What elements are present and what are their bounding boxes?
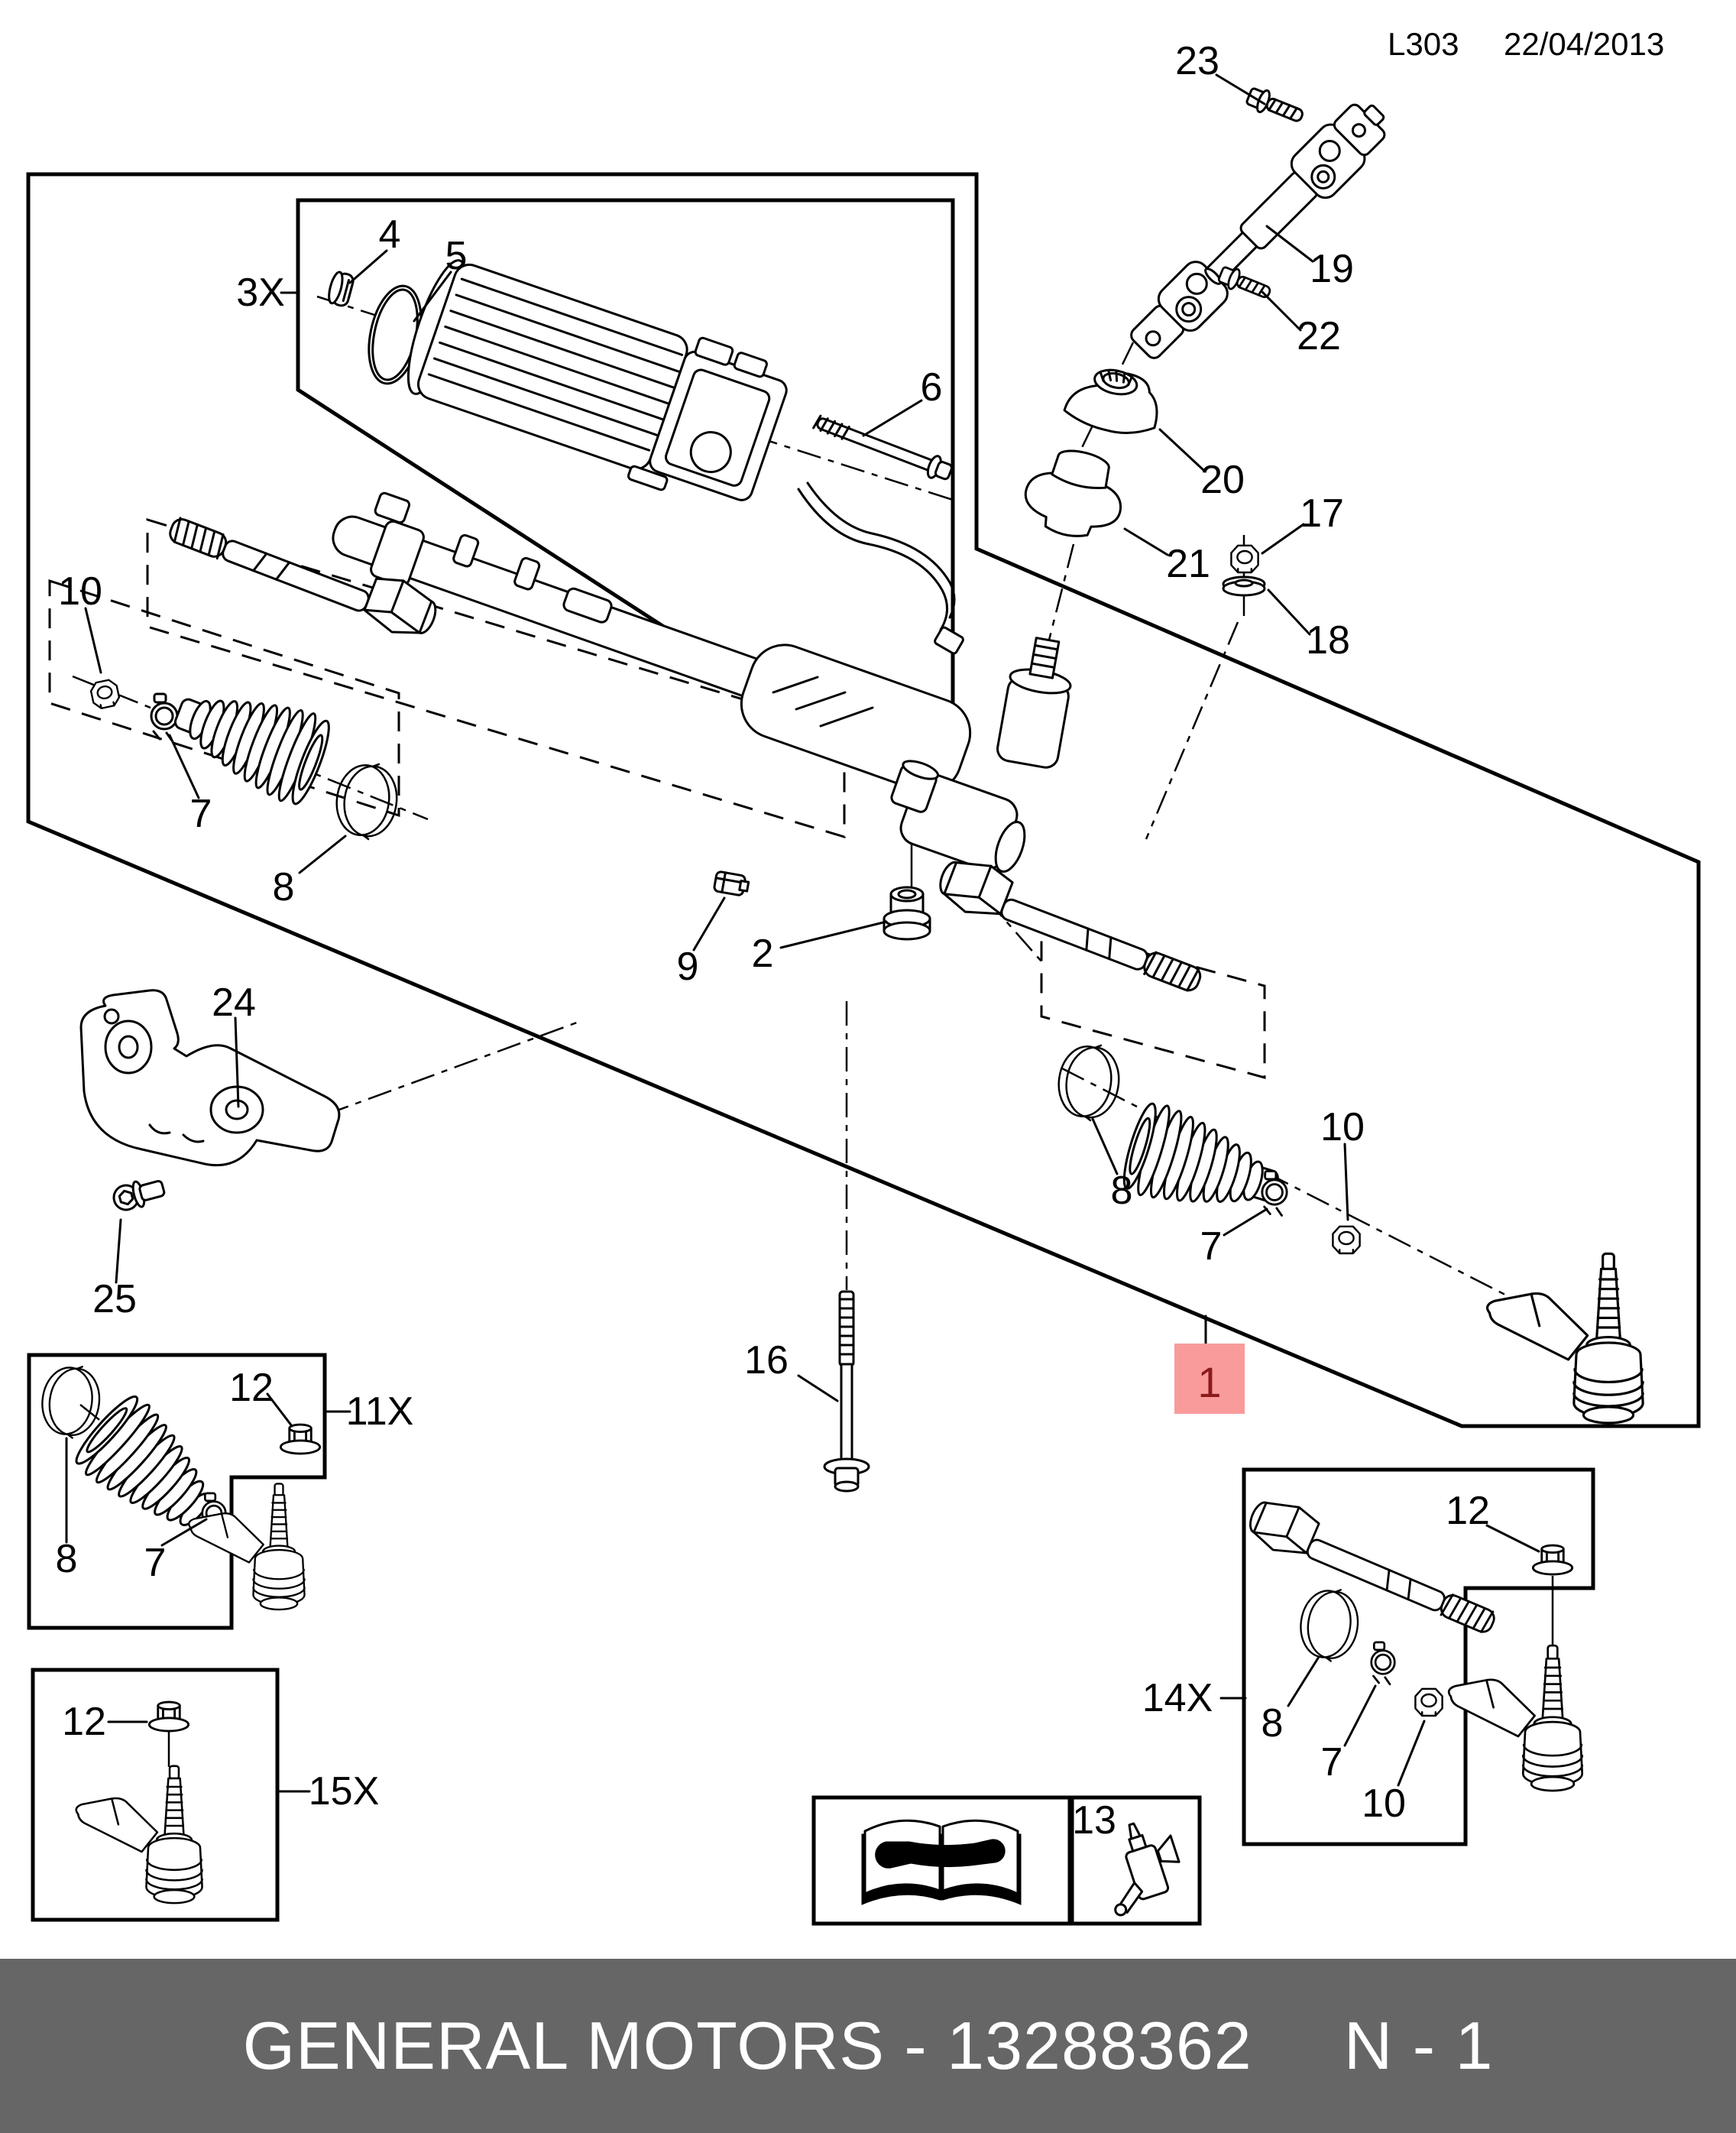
bolt-6 (811, 410, 954, 483)
callout-20: 20 (1200, 458, 1245, 502)
callout-5: 5 (445, 234, 468, 278)
callout-10-left: 10 (58, 569, 102, 614)
callout-18: 18 (1306, 618, 1350, 663)
callout-8-left: 8 (273, 865, 295, 909)
kit-15x-tie-rod-end (76, 1766, 202, 1903)
callout-16: 16 (744, 1338, 789, 1383)
callout-8-14x: 8 (1262, 1701, 1284, 1746)
callout-3x: 3X (236, 271, 285, 315)
callout-24: 24 (212, 981, 256, 1025)
book-wrench-icon (862, 1820, 1021, 1904)
callout-10-14x: 10 (1362, 1781, 1406, 1826)
clip-9 (714, 871, 750, 896)
bolt-25 (111, 1175, 167, 1214)
lock-nut-10-right (1333, 1227, 1359, 1253)
callout-22: 22 (1297, 314, 1341, 358)
callout-7-11x: 7 (144, 1541, 167, 1585)
ring-8-left (332, 759, 401, 843)
plug-4 (326, 271, 355, 307)
callout-2: 2 (752, 932, 774, 976)
parts-diagram-page: L303 22/04/2013 (0, 0, 1736, 2133)
callout-12-14x: 12 (1446, 1489, 1490, 1533)
column-boot-21 (1018, 441, 1132, 546)
kit-14x-nut-12 (1533, 1545, 1572, 1574)
bolt-23 (1245, 85, 1306, 128)
kit-14x-tie-rod-end (1449, 1645, 1582, 1791)
inner-tie-rod-right (933, 851, 1210, 999)
clamp-7-left (151, 694, 177, 741)
dashed-box-right-tierod (1041, 925, 1265, 1078)
footer-banner: GENERAL MOTORS - 13288362 N - 1 (0, 1959, 1736, 2133)
callout-11x: 11X (346, 1389, 414, 1434)
callout-6: 6 (921, 365, 943, 410)
callout-13: 13 (1072, 1798, 1116, 1843)
kit-11x-nut-12 (280, 1425, 319, 1454)
footer-title: GENERAL MOTORS - 13288362 (243, 2007, 1252, 2085)
steering-gear-assembly (328, 483, 1077, 875)
callout-23: 23 (1175, 39, 1219, 83)
callout-19: 19 (1310, 247, 1354, 291)
kit-14x-clamp-7 (1372, 1642, 1395, 1684)
callout-10-right: 10 (1320, 1105, 1365, 1149)
callout-21: 21 (1166, 542, 1210, 586)
nut-17 (1231, 546, 1258, 572)
bracket-24 (81, 990, 339, 1165)
bushing-2 (884, 887, 930, 939)
ring-8-right (1054, 1040, 1123, 1124)
kit-14x-nut-10 (1415, 1689, 1442, 1716)
bolt-16 (824, 1292, 869, 1491)
callout-7-left: 7 (190, 792, 212, 836)
callout-14x: 14X (1142, 1676, 1213, 1720)
bearing-seal-20 (1062, 361, 1164, 439)
callout-12-15x: 12 (62, 1700, 106, 1744)
callout-8-11x: 8 (56, 1537, 78, 1581)
callout-1: 1 (1197, 1358, 1221, 1406)
callout-9: 9 (677, 945, 699, 989)
callout-25: 25 (92, 1277, 137, 1321)
tie-rod-end-right (1488, 1253, 1644, 1423)
washer-18 (1223, 577, 1265, 595)
footer-page-number: N - 1 (1344, 2007, 1494, 2085)
callout-7-14x: 7 (1321, 1740, 1343, 1785)
callout-4: 4 (379, 212, 401, 257)
callout-15x: 15X (309, 1769, 380, 1814)
callout-17: 17 (1300, 491, 1344, 536)
boot-left (162, 668, 336, 809)
callout-8-right: 8 (1111, 1169, 1133, 1213)
intermediate-shaft-19 (1122, 92, 1398, 368)
kit-14x-ring-8 (1296, 1584, 1362, 1664)
callout-7-right: 7 (1200, 1224, 1223, 1269)
motor-assembly (394, 249, 795, 518)
exploded-parts-diagram: 1 23 19 22 20 21 17 18 3X 4 5 6 10 7 8 9… (0, 0, 1736, 2133)
callout-12-11x: 12 (229, 1366, 274, 1410)
kit-15x-nut-12 (149, 1702, 188, 1731)
lock-nut-10-left (89, 679, 121, 710)
